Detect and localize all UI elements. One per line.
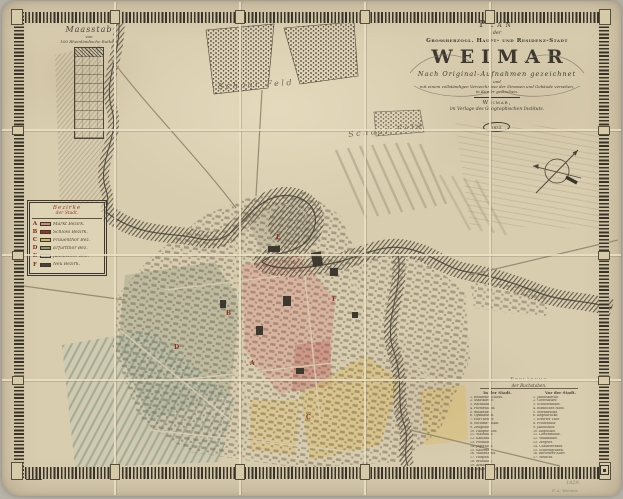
district-letter-key: B — [32, 229, 38, 235]
cartouche-place: Weimar, — [400, 100, 594, 107]
index-legend: Erklärung der Buchstaben. In der Stadt. … — [466, 377, 592, 471]
index-entry: 20. Schiesshaus. — [466, 468, 529, 471]
margin-note: F. A. Weimar. — [552, 488, 578, 493]
border-band-left — [14, 12, 24, 478]
cartouche-der: der — [400, 30, 594, 37]
fold-patch — [12, 376, 24, 385]
fold-line — [2, 379, 621, 381]
fold-line — [114, 2, 116, 495]
margin-note: 1829. — [566, 480, 580, 486]
border-band-right — [599, 12, 609, 478]
district-letter: B — [226, 310, 231, 317]
scale-title: Maasstab — [50, 25, 128, 34]
scale-ruler — [74, 47, 104, 139]
fold-patch — [598, 251, 610, 260]
district-name: Erfurtthor Bez. — [53, 246, 88, 251]
cartouche-city-name: WEIMAR — [400, 45, 594, 69]
district-legend-row: A Markt Bezirk. — [32, 221, 102, 227]
fold-patch — [12, 126, 24, 135]
fold-patch — [235, 464, 245, 480]
scale-unit: 100 Rheinländische Ruthen. — [50, 39, 128, 44]
fold-patch — [360, 464, 370, 480]
index-entries-city: 1. Residenz-Schloss.2. Stadtkirche.3. Ra… — [466, 396, 529, 472]
fold-patch — [11, 462, 23, 480]
district-color-swatch — [40, 230, 51, 234]
district-color-swatch — [40, 246, 51, 250]
district-name: Schloss Bezirk. — [53, 230, 88, 235]
fold-line — [364, 2, 366, 495]
district-letter: C — [306, 414, 311, 421]
district-letter: D — [174, 344, 179, 351]
district-letter: F — [332, 296, 336, 303]
district-color-swatch — [40, 263, 51, 267]
cartouche-publisher: im Verlage des Geographischen Instituts. — [400, 107, 594, 113]
district-legend-row: C Frauenthor Bez. — [32, 237, 102, 243]
title-cartouche: Plan der Großherzogl. Haupt- und Residen… — [400, 20, 594, 132]
index-column-city: In der Stadt. 1. Residenz-Schloss.2. Sta… — [466, 390, 529, 471]
district-letter-key: A — [32, 221, 38, 227]
compass-rose-icon — [530, 146, 584, 200]
cartouche-engraved-line: in Kupfer gestochen. — [400, 89, 594, 95]
index-column-suburbs: Vor der Stadt. 1. Jakobskirche.2. Gottes… — [529, 390, 592, 471]
cartouche-plan: Plan — [400, 20, 594, 30]
fold-line — [2, 129, 621, 131]
fold-patch — [12, 251, 24, 260]
index-legend-subtitle: der Buchstaben. — [480, 383, 578, 389]
district-legend-row: B Schloss Bezirk. — [32, 229, 102, 235]
fold-patch — [110, 10, 120, 24]
fold-line — [239, 2, 241, 495]
cartouche-subtitle: Großherzogl. Haupt- und Residenz-Stadt — [400, 37, 594, 45]
fold-patch — [599, 9, 611, 25]
district-color-swatch — [40, 222, 51, 226]
district-legend: Bezirke der Stadt. A Markt Bezirk. B Sch… — [29, 202, 105, 274]
fold-patch — [11, 9, 23, 25]
cartouche-drawn-line: Nach Original-Aufnahmen gezeichnet — [400, 69, 594, 79]
district-name: Neu Bezirk. — [53, 262, 80, 267]
district-color-swatch — [40, 238, 51, 242]
district-legend-row: F Neu Bezirk. — [32, 262, 102, 268]
fold-patch — [485, 10, 495, 24]
district-name: Frauenthor Bez. — [53, 238, 90, 243]
district-name: Markt Bezirk. — [53, 222, 85, 227]
fold-patch — [110, 464, 120, 480]
fold-patch — [598, 376, 610, 385]
fold-patch — [598, 126, 610, 135]
district-letter-key: F — [32, 262, 38, 268]
fold-patch — [360, 10, 370, 24]
district-legend-subtitle: der Stadt. — [32, 211, 102, 219]
district-letter-key: D — [32, 245, 38, 251]
fold-line — [2, 254, 621, 256]
fold-patch — [235, 10, 245, 24]
index-entries-suburbs: 1. Jakobskirche.2. Gottesacker.3. Schütz… — [529, 396, 592, 461]
district-legend-rows: A Markt Bezirk. B Schloss Bezirk. C Frau… — [32, 221, 102, 267]
cartouche-rule — [474, 97, 520, 98]
corner-ornament-icon — [600, 465, 609, 475]
index-entry: 17. Webicht. — [529, 456, 592, 460]
index-legend-columns: In der Stadt. 1. Residenz-Schloss.2. Sta… — [466, 390, 592, 471]
scanned-map-photo: Maasstab von 100 Rheinländische Ruthen. … — [0, 0, 623, 499]
district-letter: A — [250, 360, 255, 367]
scale-bar: Maasstab von 100 Rheinländische Ruthen. — [50, 25, 128, 139]
district-letter-key: C — [32, 237, 38, 243]
fold-line — [489, 2, 491, 495]
fold-patch — [485, 464, 495, 480]
district-letter: E — [276, 234, 281, 241]
district-legend-row: D Erfurtthor Bez. — [32, 245, 102, 251]
